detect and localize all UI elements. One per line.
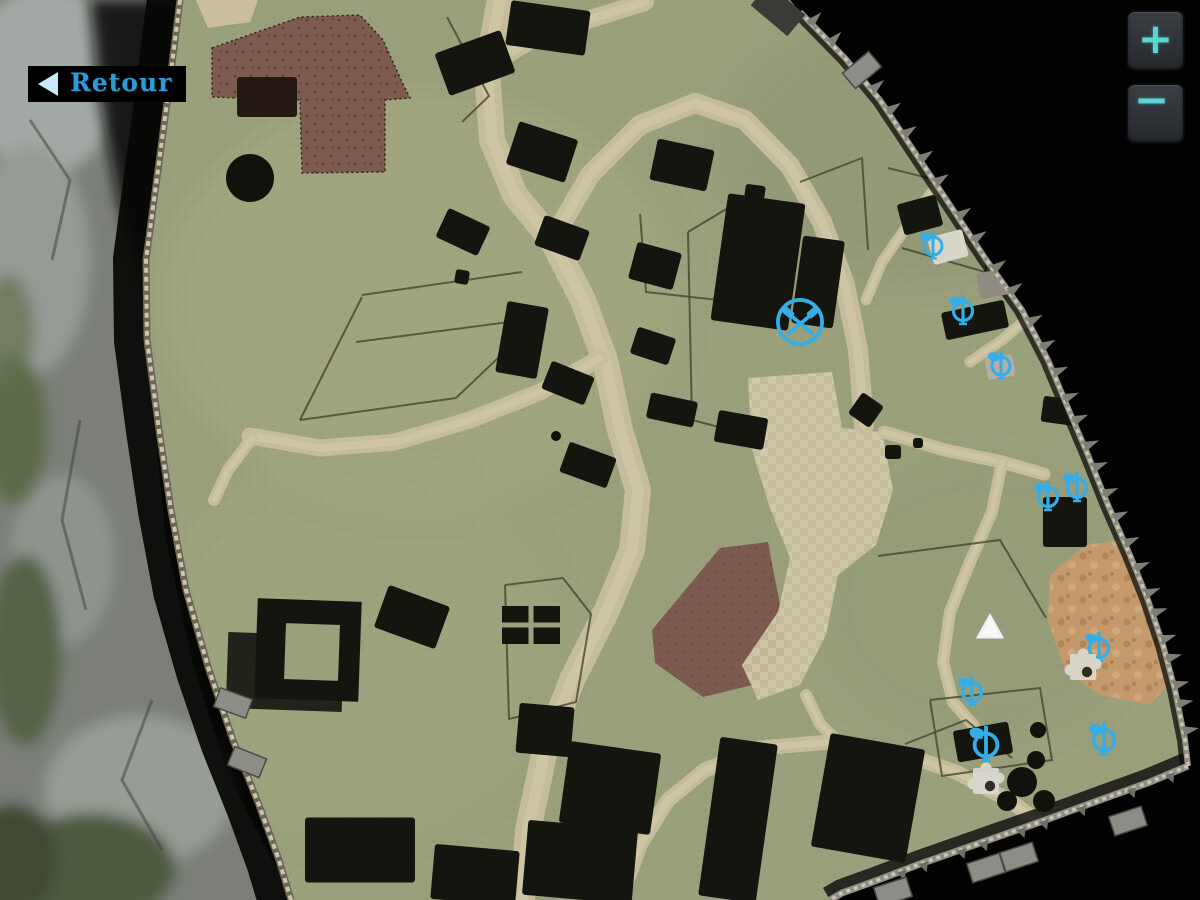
back-button[interactable]: Retour (28, 66, 186, 102)
back-arrow-icon (38, 72, 58, 96)
zoom-in-button[interactable]: + (1126, 10, 1185, 71)
back-button-label: Retour (70, 70, 172, 98)
building (811, 733, 926, 863)
building (237, 77, 297, 117)
building (305, 818, 415, 883)
building (913, 438, 923, 448)
building (430, 844, 519, 900)
building (885, 445, 901, 459)
building (454, 269, 470, 285)
village-map[interactable] (0, 0, 1200, 900)
building (515, 703, 574, 758)
building (559, 741, 662, 835)
plus-icon: + (1138, 18, 1173, 60)
building (744, 184, 766, 201)
zoom-out-button[interactable]: − (1126, 83, 1185, 144)
game-screen: Retour + − (0, 0, 1200, 900)
building (522, 820, 638, 900)
four-pane-building (502, 606, 560, 644)
minus-icon: − (1134, 79, 1169, 121)
